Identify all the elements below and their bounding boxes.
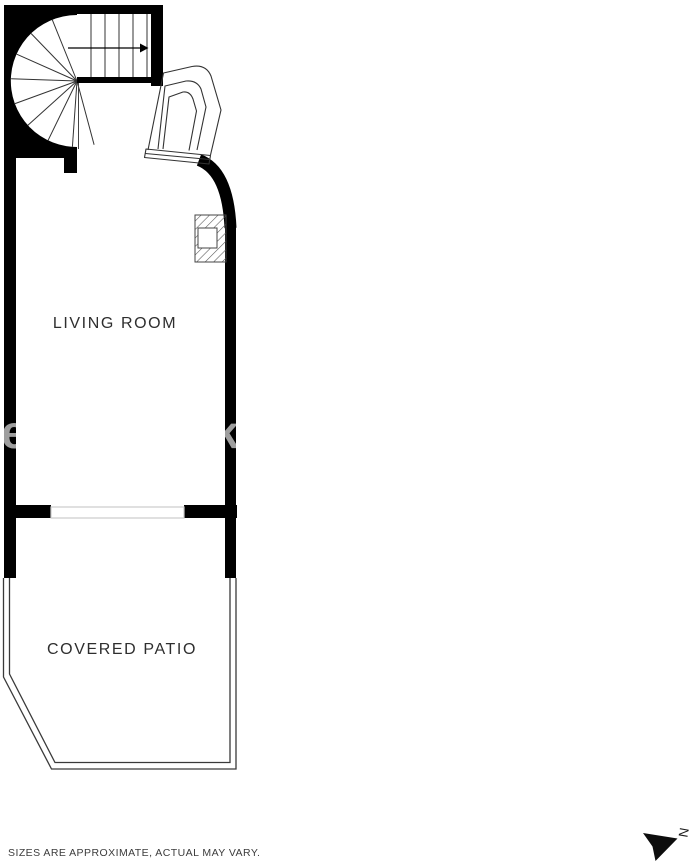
patio-outer-line: [4, 578, 237, 769]
divider-wall-left: [4, 505, 51, 518]
patio-outline: [4, 578, 237, 769]
door-leaf-inner: [163, 92, 197, 151]
north-arrow-icon: [643, 833, 678, 861]
stair-wall-stub: [64, 150, 77, 173]
covered-patio-label: COVERED PATIO: [47, 641, 197, 659]
stair-run: [77, 14, 151, 77]
floor-plan-page: LIVING ROOM COVERED PATIO SIZES ARE APPR…: [0, 0, 696, 867]
fireplace-firebox: [198, 228, 217, 248]
divider-wall-right: [184, 505, 237, 518]
top-wall: [4, 5, 163, 14]
right-wall: [225, 225, 236, 578]
patio-inner-line: [10, 578, 231, 763]
floor-plan-drawing: [0, 0, 696, 867]
disclaimer-text: SIZES ARE APPROXIMATE, ACTUAL MAY VARY.: [8, 847, 260, 859]
living-room-label: LIVING ROOM: [53, 315, 177, 333]
door-leaf-mid: [158, 81, 206, 150]
stair-right-wall: [151, 5, 163, 86]
sliding-glass-door: [51, 507, 184, 518]
fireplace: [195, 215, 226, 262]
stair-run-edge: [77, 77, 163, 83]
